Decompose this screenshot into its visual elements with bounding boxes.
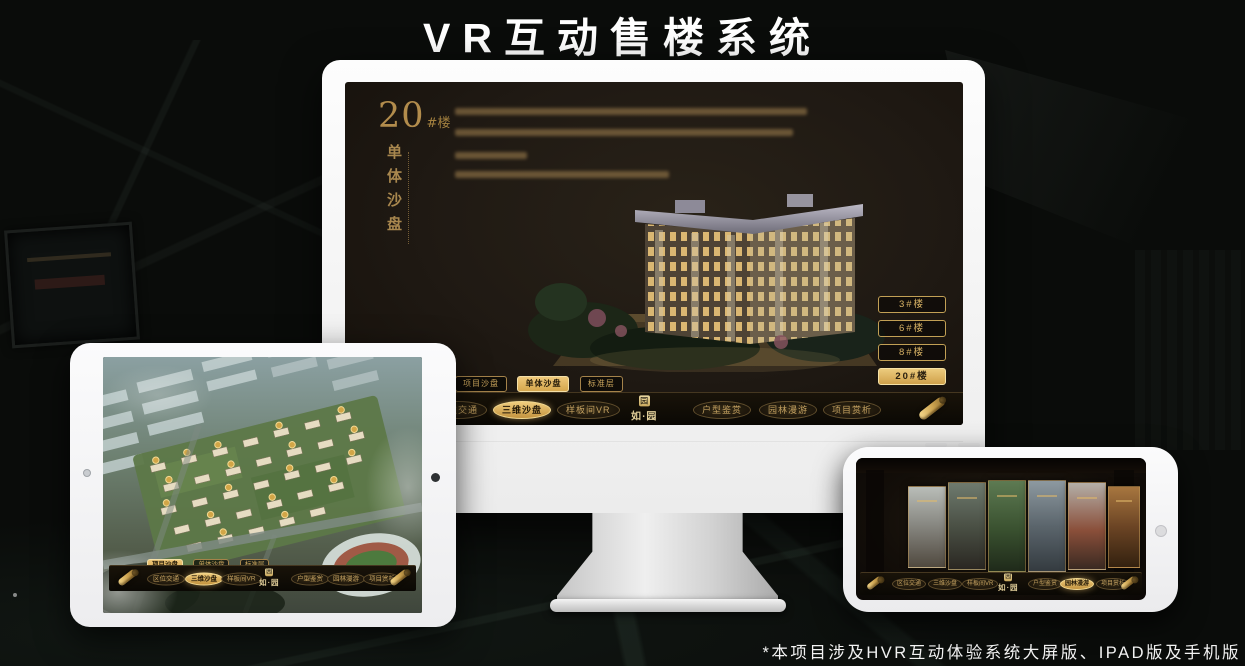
gallery-card[interactable] bbox=[908, 486, 946, 568]
blurred-text-line bbox=[455, 129, 793, 136]
floor-button-8[interactable]: 8#楼 bbox=[878, 344, 946, 361]
tablet-home-button[interactable] bbox=[431, 473, 440, 482]
menu-label: 项目赏析 bbox=[832, 405, 872, 415]
phone-camera-icon bbox=[1155, 525, 1167, 537]
tablet-menu-item-5[interactable]: 园林漫游 bbox=[327, 572, 365, 585]
subtab-single-sandtable[interactable]: 单体沙盘 bbox=[517, 376, 569, 392]
floor-button-6[interactable]: 6#楼 bbox=[878, 320, 946, 337]
brand-seal-icon: 园 bbox=[1004, 573, 1012, 581]
monitor-stand bbox=[557, 513, 778, 605]
phone-screen: 区位交通 三维沙盘 样板间VR 园 如·园 户型鉴赏 园林漫游 项目赏析 bbox=[856, 458, 1146, 600]
plaque-text-line bbox=[27, 252, 111, 262]
plaque-text-line bbox=[35, 275, 106, 290]
tablet-screen: 项目沙盘 单体沙盘 标准层 区位交通 三维沙盘 样板间VR 园 如·园 户型鉴赏… bbox=[103, 357, 422, 613]
card-caption bbox=[1037, 495, 1057, 497]
brand-logo[interactable]: 园 如·园 bbox=[631, 395, 657, 422]
phone-menu-bar: 区位交通 三维沙盘 样板间VR 园 如·园 户型鉴赏 园林漫游 项目赏析 bbox=[860, 572, 1142, 595]
menu-label: 户型鉴赏 bbox=[1033, 581, 1057, 587]
page-title: VR互动售楼系统 bbox=[0, 4, 1245, 64]
menu-label: 区位交通 bbox=[897, 581, 921, 587]
block-caption-vertical: 单体沙盘 bbox=[383, 144, 404, 240]
menu-label: 园林漫游 bbox=[1065, 581, 1089, 587]
phone-menu-item-3[interactable]: 样板间VR bbox=[962, 578, 998, 590]
caption-accent-line bbox=[408, 152, 409, 244]
menu-label: 样板间VR bbox=[566, 405, 611, 415]
menu-label: 园林漫游 bbox=[333, 575, 359, 582]
menu-label: 三维沙盘 bbox=[191, 575, 217, 582]
brand-logo-text: 如·园 bbox=[631, 407, 657, 422]
tablet-camera-icon bbox=[83, 469, 91, 477]
scroll-icon[interactable] bbox=[117, 568, 138, 586]
floor-button-20[interactable]: 20#楼 bbox=[878, 368, 946, 385]
brand-logo-text: 如·园 bbox=[259, 577, 280, 588]
brand-seal-icon: 园 bbox=[265, 568, 273, 576]
scroll-icon[interactable] bbox=[1120, 575, 1137, 590]
brand-logo[interactable]: 园 如·园 bbox=[259, 568, 280, 588]
tablet-menu-item-2[interactable]: 三维沙盘 bbox=[185, 572, 223, 585]
blurred-text-line bbox=[455, 152, 527, 159]
footnote: *本项目涉及HVR互动体验系统大屏版、IPAD版及手机版 bbox=[762, 639, 1241, 663]
gallery-card[interactable] bbox=[948, 482, 986, 570]
desktop-menu-item-4[interactable]: 户型鉴赏 bbox=[693, 401, 751, 419]
brand-logo-text: 如·园 bbox=[998, 582, 1019, 593]
background-light-dot bbox=[13, 593, 17, 597]
monitor-stand-base bbox=[550, 599, 786, 612]
tablet-menu-bar: 区位交通 三维沙盘 样板间VR 园 如·园 户型鉴赏 园林漫游 项目赏析 bbox=[109, 565, 416, 591]
menu-label: 三维沙盘 bbox=[933, 581, 957, 587]
tablet-menu-item-3[interactable]: 样板间VR bbox=[221, 572, 262, 585]
card-caption bbox=[957, 497, 977, 499]
block-number: 20 bbox=[378, 96, 425, 136]
phone-menu-item-4[interactable]: 户型鉴赏 bbox=[1028, 578, 1062, 590]
tablet-device: 项目沙盘 单体沙盘 标准层 区位交通 三维沙盘 样板间VR 园 如·园 户型鉴赏… bbox=[70, 343, 456, 627]
phone-device: 区位交通 三维沙盘 样板间VR 园 如·园 户型鉴赏 园林漫游 项目赏析 bbox=[843, 447, 1178, 612]
desktop-subtabs: 项目沙盘 单体沙盘 标准层 bbox=[455, 373, 629, 392]
poster-canvas: VR互动售楼系统 20#楼 单体沙盘 bbox=[0, 0, 1245, 666]
gallery-card[interactable] bbox=[1068, 482, 1106, 570]
desktop-menu-item-3[interactable]: 样板间VR bbox=[557, 401, 620, 419]
menu-label: 户型鉴赏 bbox=[297, 575, 323, 582]
subtab-standard-floor[interactable]: 标准层 bbox=[580, 376, 623, 392]
background-plaque bbox=[4, 222, 140, 349]
building-render bbox=[525, 154, 885, 372]
scroll-icon[interactable] bbox=[866, 575, 883, 590]
courtyard-pillar-silhouette bbox=[866, 470, 884, 580]
background-building-silhouette bbox=[1135, 250, 1245, 450]
tablet-menu-item-4[interactable]: 户型鉴赏 bbox=[291, 572, 329, 585]
tablet-menu-item-1[interactable]: 区位交通 bbox=[147, 572, 185, 585]
block-headline: 20#楼 bbox=[378, 96, 450, 136]
phone-menu-item-5[interactable]: 园林漫游 bbox=[1060, 578, 1094, 590]
card-caption bbox=[1116, 500, 1133, 502]
floor-button-3[interactable]: 3#楼 bbox=[878, 296, 946, 313]
blurred-text-line bbox=[455, 108, 807, 115]
phone-menu-item-2[interactable]: 三维沙盘 bbox=[928, 578, 962, 590]
brand-seal-icon: 园 bbox=[639, 395, 650, 406]
desktop-menu-item-5[interactable]: 园林漫游 bbox=[759, 401, 817, 419]
card-caption bbox=[997, 495, 1017, 497]
phone-menu-item-1[interactable]: 区位交通 bbox=[892, 578, 926, 590]
menu-label: 三维沙盘 bbox=[502, 405, 542, 415]
menu-label: 园林漫游 bbox=[768, 405, 808, 415]
menu-label: 户型鉴赏 bbox=[702, 405, 742, 415]
card-caption bbox=[1077, 497, 1097, 499]
courtyard-eave-silhouette bbox=[856, 458, 1146, 473]
background-photo-band bbox=[945, 50, 1245, 290]
desktop-menu-item-2[interactable]: 三维沙盘 bbox=[493, 401, 551, 419]
menu-label: 区位交通 bbox=[153, 575, 179, 582]
desktop-menu-item-6[interactable]: 项目赏析 bbox=[823, 401, 881, 419]
floor-button-group: 3#楼 6#楼 8#楼 20#楼 bbox=[878, 296, 946, 392]
subtab-project-sandtable[interactable]: 项目沙盘 bbox=[455, 376, 507, 392]
scroll-icon[interactable] bbox=[389, 568, 410, 586]
menu-label: 样板间VR bbox=[227, 575, 256, 582]
gallery-card[interactable] bbox=[988, 480, 1026, 572]
menu-label: 样板间VR bbox=[967, 581, 993, 587]
card-caption bbox=[917, 500, 937, 502]
gallery-card[interactable] bbox=[1108, 486, 1140, 568]
block-unit: #楼 bbox=[427, 116, 451, 131]
brand-logo[interactable]: 园 如·园 bbox=[998, 573, 1019, 593]
scroll-icon[interactable] bbox=[917, 396, 946, 422]
gallery-card[interactable] bbox=[1028, 480, 1066, 572]
